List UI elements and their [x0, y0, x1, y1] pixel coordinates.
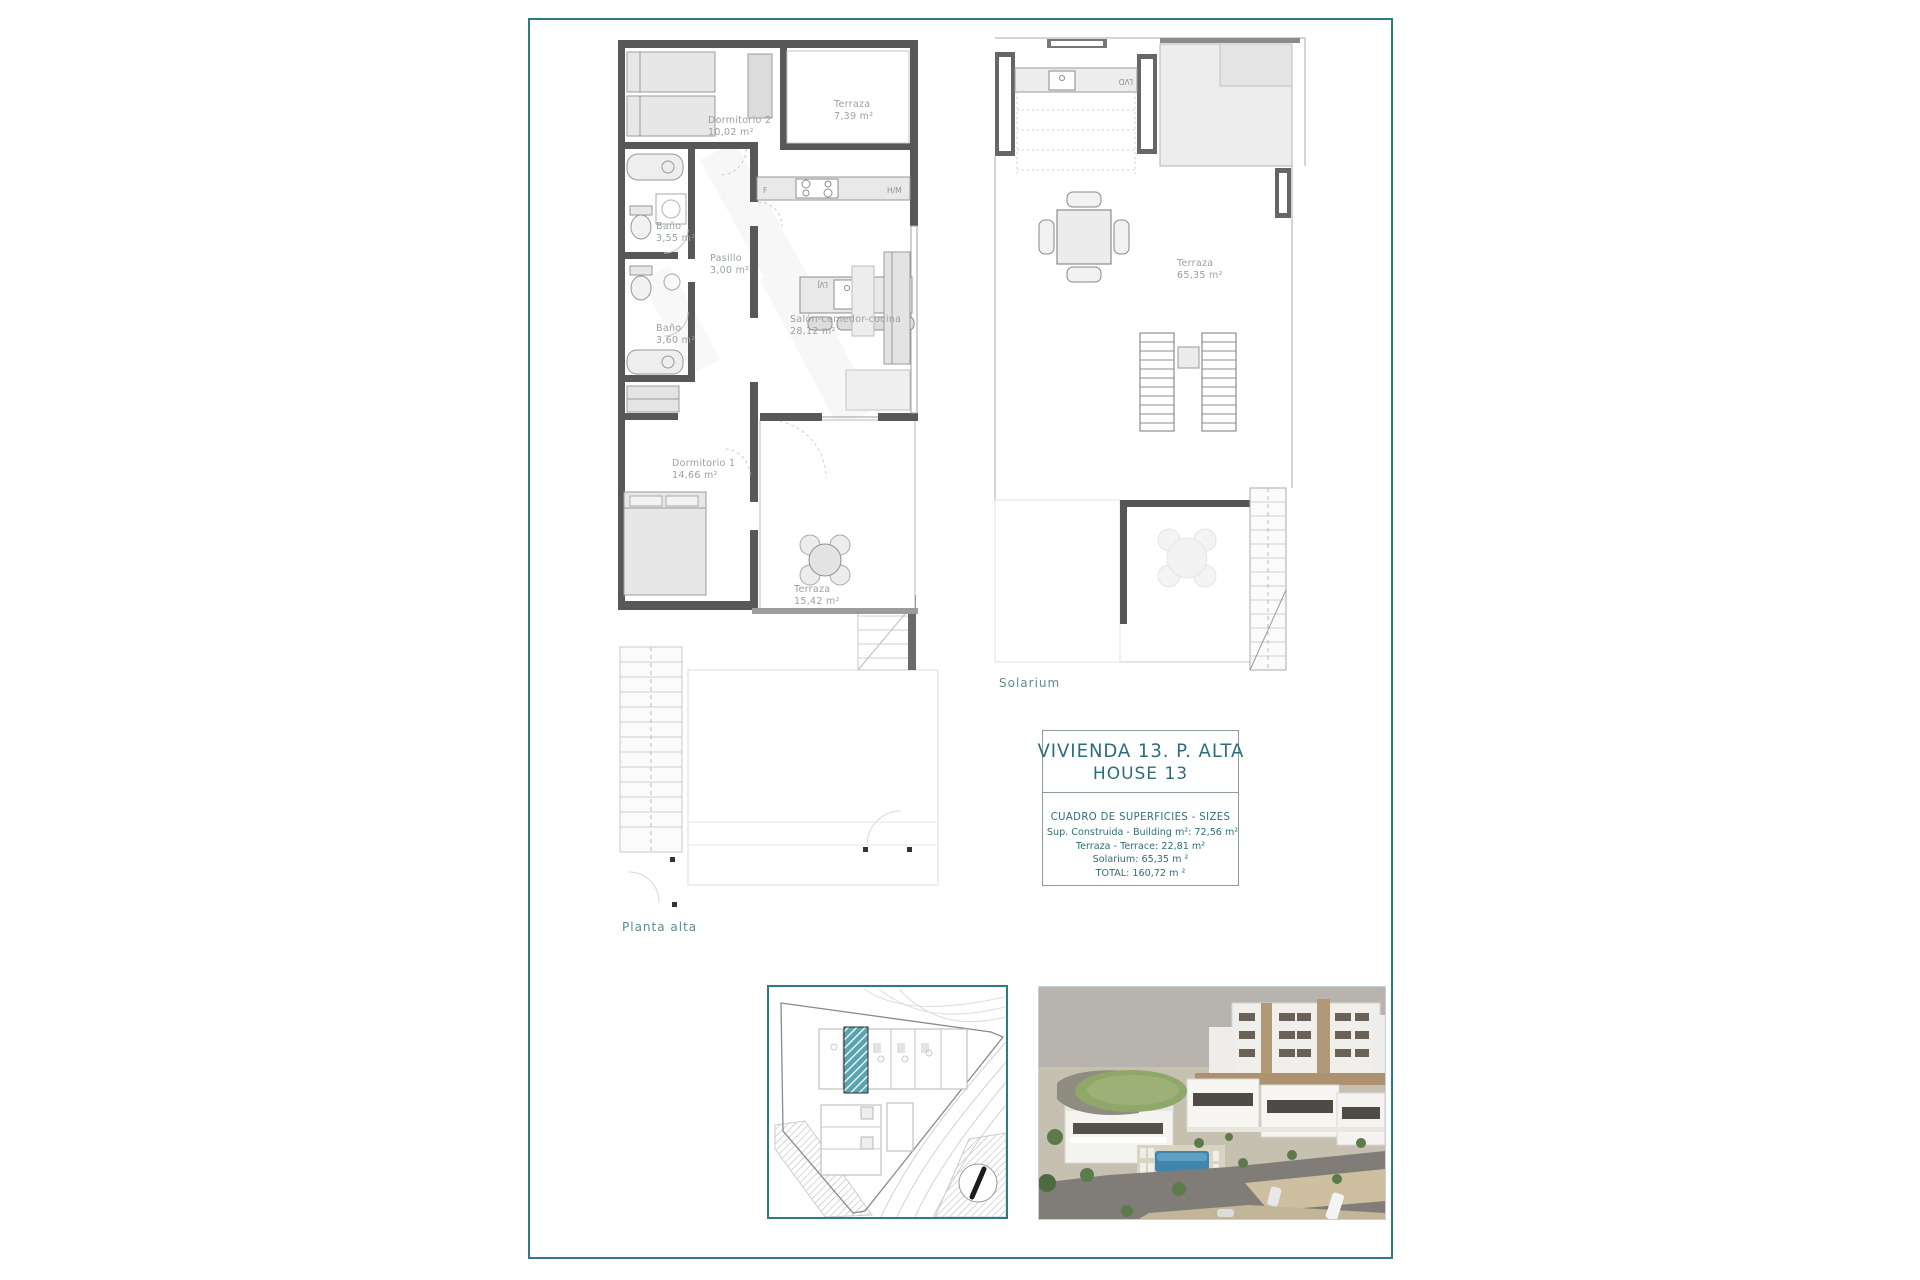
background-buildings: [1209, 999, 1385, 1077]
roof-block: [1160, 44, 1292, 218]
svg-text:10,02 m²: 10,02 m²: [708, 127, 754, 138]
svg-text:14,66 m²: 14,66 m²: [672, 470, 718, 481]
title-en: HOUSE 13: [1093, 764, 1188, 784]
document-page: Dormitorio 2 10,02 m² Terraza 7,39 m² Ba…: [528, 18, 1393, 1259]
highlighted-unit: [844, 1027, 868, 1093]
render-scene: [1039, 987, 1385, 1219]
side-table: [1178, 347, 1199, 368]
room-label-salon: Salón-comedor-cocina: [790, 314, 901, 325]
sizes-row-solarium: Solarium: 65,35 m ²: [1047, 853, 1234, 867]
floor-plan-upper: Dormitorio 2 10,02 m² Terraza 7,39 m² Ba…: [600, 30, 945, 945]
svg-text:65,35 m²: 65,35 m²: [1177, 270, 1223, 281]
sizes-row-terrace: Terraza - Terrace: 22,81 m²: [1047, 840, 1234, 854]
site-plan-drawing: [769, 987, 1006, 1217]
shower: [656, 194, 686, 224]
fridge-label: F: [763, 186, 767, 195]
coffee-table: [852, 266, 874, 336]
room-label-pasillo: Pasillo: [710, 253, 742, 264]
site-plan-image: [767, 985, 1008, 1219]
pergola-slats: [1017, 92, 1135, 175]
svg-text:15,42 m²: 15,42 m²: [794, 596, 840, 607]
wardrobe: [748, 54, 772, 118]
render-image: [1038, 986, 1386, 1220]
dining-table: [1057, 210, 1111, 264]
screenshot-stage: Dormitorio 2 10,02 m² Terraza 7,39 m² Ba…: [0, 0, 1920, 1280]
double-bed: [624, 492, 706, 595]
title-es: VIVIENDA 13. P. ALTA: [1037, 740, 1244, 762]
north-indicator: [959, 1164, 997, 1202]
title-box: VIVIENDA 13. P. ALTA HOUSE 13: [1042, 730, 1239, 793]
toilet: [631, 215, 651, 239]
bathtub: [627, 154, 683, 180]
ghost-table: [1158, 529, 1216, 587]
laundry-counter: [1015, 68, 1137, 92]
void-outline: [995, 500, 1120, 662]
svg-text:28,12 m²: 28,12 m²: [790, 326, 836, 337]
dishwasher-label: LVJ: [817, 280, 828, 289]
room-label-terraza-solarium: Terraza: [1176, 258, 1213, 269]
townhouse-row: [819, 1027, 967, 1093]
sizes-table: CUADRO DE SUPERFICIES - SIZES Sup. Const…: [1042, 792, 1239, 886]
dining-set: [1039, 192, 1129, 282]
svg-text:3,55 m²: 3,55 m²: [656, 233, 695, 244]
room-label-dormitorio2: Dormitorio 2: [708, 115, 771, 126]
sizes-row-built: Sup. Construida - Building m²: 72,56 m²: [1047, 826, 1234, 840]
round-table: [809, 544, 841, 576]
stairs-exterior: [620, 647, 682, 852]
room-label-bano1: Baño: [656, 221, 681, 232]
sofa: [884, 252, 910, 364]
laundry-label: LVD: [1119, 77, 1133, 86]
floor-label-planta-alta: Planta alta: [622, 920, 697, 934]
lower-buildings: [821, 1103, 913, 1175]
svg-text:3,60 m²: 3,60 m²: [656, 335, 695, 346]
room-label-bano2: Baño: [656, 323, 681, 334]
room-label-terraza-top: Terraza: [833, 99, 870, 110]
sizes-header: CUADRO DE SUPERFICIES - SIZES: [1047, 811, 1234, 823]
oven-label: H/M: [887, 186, 902, 195]
sun-loungers: [1140, 333, 1236, 431]
svg-text:3,00 m²: 3,00 m²: [710, 265, 749, 276]
terrace-lower: [752, 420, 918, 614]
title-block: VIVIENDA 13. P. ALTA HOUSE 13 CUADRO DE …: [1042, 730, 1239, 886]
floor-label-solarium: Solarium: [999, 676, 1060, 690]
sizes-row-total: TOTAL: 160,72 m ²: [1047, 867, 1234, 881]
room-label-dormitorio1: Dormitorio 1: [672, 458, 735, 469]
terrace-top-floor: [787, 51, 909, 143]
bathtub: [627, 350, 683, 374]
floor-plan-solarium: LVD: [987, 30, 1317, 710]
room-label-terraza-bottom: Terraza: [793, 584, 830, 595]
svg-text:7,39 m²: 7,39 m²: [834, 111, 873, 122]
toilet: [631, 276, 651, 300]
living-furniture: [846, 252, 910, 410]
stairs-solarium: [1250, 488, 1286, 670]
